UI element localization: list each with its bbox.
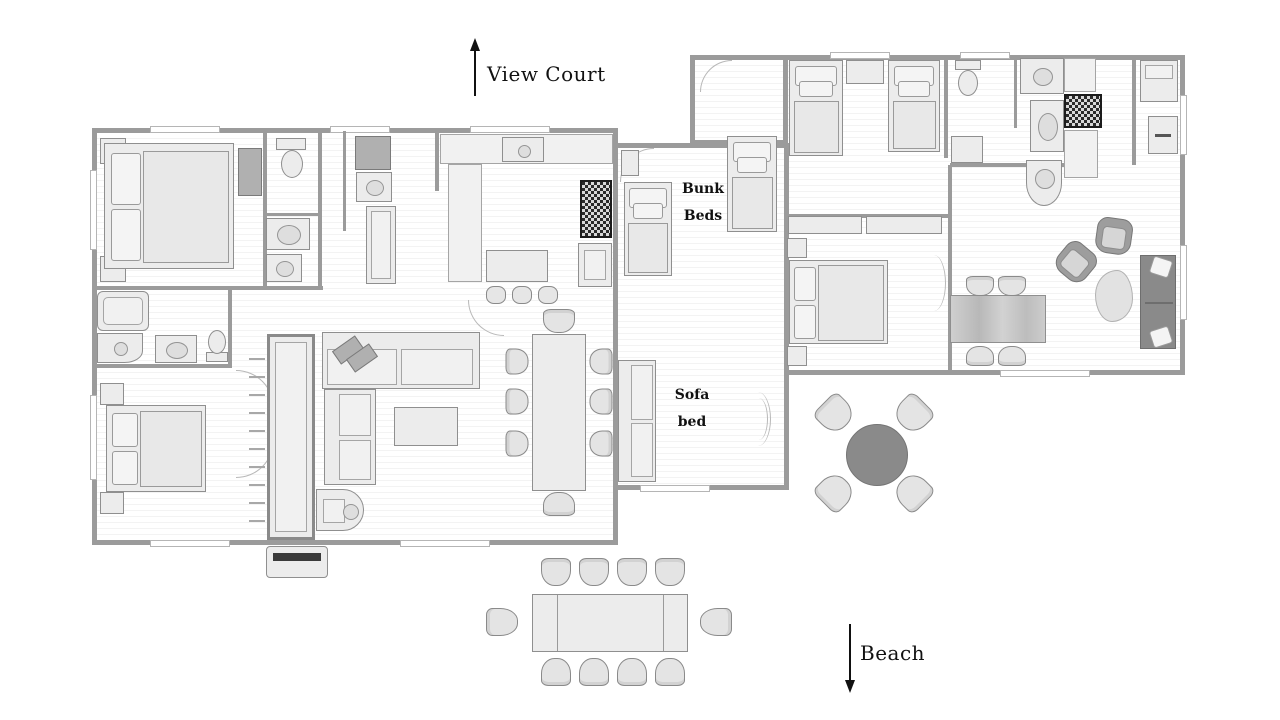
door-arc	[750, 398, 768, 440]
dining-chair	[506, 349, 529, 375]
window	[90, 395, 97, 480]
entry-annex-outline	[690, 55, 790, 145]
dining-chair	[998, 346, 1026, 366]
dining-chair	[543, 309, 575, 333]
sofa-sectional-chaise	[324, 389, 376, 485]
vanity-sink	[155, 335, 197, 363]
fireplace	[316, 489, 364, 531]
window	[150, 540, 230, 547]
wall	[95, 286, 323, 290]
toilet-bowl	[958, 70, 978, 96]
outdoor-chair	[541, 658, 571, 686]
shower-stall	[951, 136, 983, 163]
oven	[578, 243, 612, 287]
nightstand	[100, 383, 124, 405]
coffee-table	[394, 407, 458, 446]
laundry-unit	[355, 136, 391, 170]
nightstand	[621, 150, 639, 176]
outdoor-chair	[812, 391, 859, 438]
window	[1180, 245, 1187, 320]
wall	[343, 131, 346, 231]
dining-chair	[998, 276, 1026, 296]
corner-sink	[266, 218, 310, 250]
window	[470, 126, 550, 133]
nightstand	[846, 60, 884, 84]
outdoor-chair	[541, 558, 571, 586]
dining-chair	[543, 492, 575, 516]
window	[960, 52, 1010, 59]
kitchenette-counter	[1064, 130, 1098, 178]
bar-stool	[538, 286, 558, 304]
kitchen-island	[486, 250, 548, 282]
toilet-bowl	[281, 150, 303, 178]
wall	[95, 364, 232, 368]
dining-chair	[590, 349, 613, 375]
wall	[263, 213, 322, 216]
wall	[435, 131, 439, 191]
double-bed	[789, 260, 888, 344]
wall	[944, 58, 948, 158]
dining-chair	[590, 389, 613, 415]
stove-icon	[1064, 94, 1102, 128]
dining-chair	[506, 389, 529, 415]
view-court-label: View Court	[487, 62, 606, 86]
bunk-beds-label: Bunk Beds	[672, 176, 734, 229]
kitchen-sink	[502, 137, 544, 162]
bbq-grill	[266, 546, 328, 578]
window	[400, 540, 490, 547]
closet	[788, 216, 862, 234]
outdoor-chair	[579, 658, 609, 686]
sofa-bed-label: Sofa bed	[664, 382, 720, 435]
vanity-sink	[356, 172, 392, 202]
single-bed	[888, 60, 940, 152]
stove-icon	[580, 180, 612, 238]
double-bed	[104, 143, 234, 269]
closet	[866, 216, 942, 234]
window	[640, 485, 710, 492]
window	[1180, 95, 1187, 155]
up-arrow-icon	[468, 38, 482, 96]
outdoor-chair	[700, 608, 732, 636]
toilet	[955, 60, 981, 70]
bar-stool	[486, 286, 506, 304]
single-bed	[789, 60, 843, 156]
beach-label: Beach	[860, 641, 925, 665]
vanity-sink	[266, 254, 302, 282]
window	[330, 126, 390, 133]
toilet-bowl	[208, 330, 226, 354]
window	[830, 52, 890, 59]
outdoor-chair	[579, 558, 609, 586]
dining-table-guest	[950, 295, 1046, 343]
wall	[318, 131, 322, 290]
sofa-bed	[618, 360, 656, 482]
hall-closet	[267, 334, 315, 540]
toilet	[276, 138, 306, 150]
outdoor-chair	[655, 658, 685, 686]
floor-plan: View Court Beach	[0, 0, 1280, 720]
shower-stall	[366, 206, 396, 284]
fridge	[1140, 60, 1178, 102]
bifold-closet-doors	[249, 352, 265, 538]
bunk-bed	[727, 136, 777, 232]
window	[150, 126, 220, 133]
window	[1000, 370, 1090, 377]
dining-chair	[590, 431, 613, 457]
nightstand	[787, 238, 807, 258]
wall	[1014, 58, 1017, 128]
kitchenette-counter	[1064, 58, 1096, 92]
nightstand	[787, 346, 807, 366]
corner-shower	[97, 333, 143, 363]
bathroom-counter	[1020, 58, 1064, 94]
outdoor-chair	[812, 469, 859, 516]
sofa	[1140, 255, 1176, 349]
vanity-sink	[1030, 100, 1064, 152]
kitchen-counter-left	[448, 164, 482, 282]
armchair	[1094, 216, 1135, 257]
outdoor-round-table	[846, 424, 908, 486]
bunk-bed	[624, 182, 672, 276]
wall	[948, 165, 952, 375]
appliance	[1148, 116, 1178, 154]
dining-chair	[506, 431, 529, 457]
pedestal-sink	[1026, 160, 1062, 206]
outdoor-chair	[655, 558, 685, 586]
side-table	[1095, 270, 1133, 322]
dining-chair	[966, 346, 994, 366]
bar-stool	[512, 286, 532, 304]
wall	[1132, 58, 1136, 165]
double-bed	[106, 405, 206, 492]
outdoor-dining-table	[532, 594, 688, 652]
wardrobe	[238, 148, 262, 196]
outdoor-chair	[617, 658, 647, 686]
door-arc	[922, 255, 946, 311]
window	[90, 170, 97, 250]
wall	[228, 288, 232, 368]
bathtub	[97, 291, 149, 331]
down-arrow-icon	[843, 624, 857, 694]
outdoor-chair	[617, 558, 647, 586]
nightstand	[100, 492, 124, 514]
dining-table	[532, 334, 586, 491]
dining-chair	[966, 276, 994, 296]
outdoor-chair	[486, 608, 518, 636]
